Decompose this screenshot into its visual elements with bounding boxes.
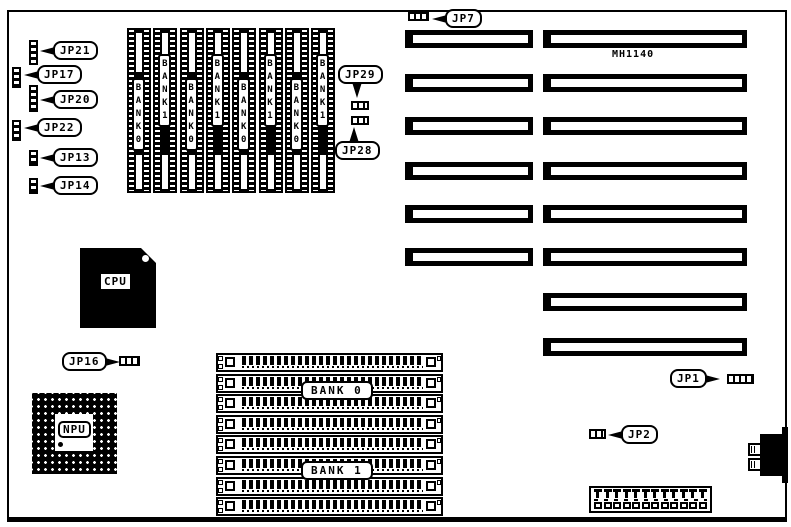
callout-arrow [40,47,55,55]
simm-clip [437,480,441,485]
slot-opening [413,122,528,130]
simm-contact-dots [242,490,423,492]
jumper-label: JP21 [60,44,91,57]
simm-contacts [242,480,423,489]
jumper-block-jp22 [12,120,21,141]
simm-latch [426,460,436,470]
dip-bank-label: BANK0 [185,78,198,151]
simm-clip [218,397,223,402]
slot-opening [551,343,742,351]
jumper-block-jp17 [12,67,21,88]
dip-bank-label: BANK1 [316,54,329,127]
power-pin-icon [661,489,669,498]
power-pin-icon [623,489,631,498]
expansion-slot [543,162,747,180]
power-socket-row [594,502,707,509]
socket-key-slot [189,33,195,72]
cpu-label: CPU [101,274,130,289]
npu-socket-center: NPU [55,414,93,451]
jumper-block-jp1 [727,374,754,384]
socket-key-slot [162,155,168,189]
expansion-slot [543,338,747,356]
slot-opening [413,253,528,261]
simm-clip [218,467,223,472]
expansion-slot [543,293,747,311]
simm-clip [437,459,441,464]
simm-latch [426,357,436,367]
callout-arrow [105,358,120,366]
simm-clip [437,397,441,402]
keyboard-port-icon [748,443,762,456]
simm-latch [426,378,436,388]
slot-opening [551,122,742,130]
dip-socket: BANK1 [206,28,230,193]
simm-latch [426,481,436,491]
simm-clip [437,438,441,443]
simm-clip [218,508,223,513]
simm-latch [225,501,235,511]
dip-socket: BANK0 [285,28,309,193]
simm-latch [426,419,436,429]
jumper-block-jp28 [351,116,369,125]
simm-latch [426,439,436,449]
expansion-slot [543,205,747,223]
dip-bank-label: BANK0 [290,78,303,151]
slot-opening [551,298,742,306]
keyboard-port-icon [748,458,762,471]
simm-clip [437,500,441,505]
simm-socket [216,497,443,516]
simm-clip [218,488,223,493]
jumper-label: JP20 [60,93,91,106]
expansion-slot [405,205,533,223]
pin1-dot-icon [142,255,149,262]
simm-clip [437,356,441,361]
simm-clip [218,377,223,382]
socket-key-slot [320,155,326,189]
jumper-label: JP28 [342,144,373,157]
jumper-block-jp29 [351,101,369,110]
simm-socket [216,353,443,372]
jumper-label: JP14 [60,179,91,192]
dip-socket: BANK1 [259,28,283,193]
jumper-block-jp20 [29,85,38,112]
expansion-slot [543,30,747,48]
jumper-label: JP29 [345,68,376,81]
callout-jp29: JP29 [338,65,383,84]
expansion-slot [405,117,533,135]
jumper-block-jp16 [119,356,140,366]
callout-arrow [40,182,55,190]
expansion-slot [543,248,747,266]
pin1-dot-icon [58,442,63,447]
power-pin-icon [594,489,602,498]
callout-jp22: JP22 [37,118,82,137]
jumper-block-jp7 [408,12,429,21]
power-socket-icon [642,502,650,509]
keyboard-connector [760,434,784,476]
slot-opening [551,167,742,175]
npu-socket: NPU [32,393,117,474]
simm-clip [218,356,223,361]
dip-bank-label: BANK1 [264,54,277,127]
power-socket-icon [632,502,640,509]
simm-clip [218,480,223,485]
socket-key-slot [294,33,300,72]
callout-arrow [352,82,362,98]
keyboard-connector-bracket [782,427,788,483]
cpu-chip: CPU [80,248,156,328]
socket-key-slot [215,155,221,189]
jumper-label: JP17 [44,68,75,81]
jumper-label: JP7 [452,12,475,25]
jumper-block-jp13 [29,150,38,166]
simm-latch [225,398,235,408]
simm-contact-dots [242,366,423,368]
expansion-slot [405,162,533,180]
jumper-block-jp21 [29,40,38,65]
power-socket-icon [604,502,612,509]
power-socket-icon [651,502,659,509]
dip-bank-label: BANK1 [158,54,171,127]
simm-latch [225,378,235,388]
callout-arrow [349,127,359,143]
simm-clip [218,364,223,369]
callout-arrow [705,375,720,383]
simm-contacts [242,356,423,365]
expansion-slot [543,74,747,92]
motherboard-diagram: BANK0BANK1BANK0BANK1BANK0BANK1BANK0BANK1… [0,0,791,527]
callout-jp1: JP1 [670,369,707,388]
jumper-label: JP1 [677,372,700,385]
power-socket-icon [594,502,602,509]
simm-latch [225,419,235,429]
socket-key-slot [241,155,247,189]
callout-arrow [24,124,39,132]
simm-latch [426,501,436,511]
simm-latch [225,460,235,470]
slot-opening [551,35,742,43]
power-pin-icon [689,489,697,498]
simm-contact-dots [242,407,423,409]
socket-pin-column [170,30,175,191]
callout-jp21: JP21 [53,41,98,60]
callout-jp20: JP20 [53,90,98,109]
simm-clip [218,500,223,505]
dip-memory-area: BANK0BANK1BANK0BANK1BANK0BANK1BANK0BANK1 [127,28,337,193]
jumper-label: JP2 [628,428,651,441]
simm-socket [216,435,443,454]
slot-opening [413,167,528,175]
expansion-slot [543,117,747,135]
power-socket-icon [699,502,707,509]
power-pin-icon [604,489,612,498]
socket-key-slot [241,33,247,72]
power-socket-icon [623,502,631,509]
jumper-label: JP22 [44,121,75,134]
power-pin-icon [670,489,678,498]
slot-opening [551,253,742,261]
simm-clip [218,426,223,431]
dip-bank-label: BANK0 [237,78,250,151]
simm-socket [216,415,443,434]
power-socket-icon [613,502,621,509]
power-socket-icon [689,502,697,509]
socket-key-slot [189,155,195,189]
power-pin-icon [699,489,707,498]
power-pin-icon [642,489,650,498]
socket-key-slot [268,155,274,189]
callout-arrow [608,431,623,439]
dip-socket: BANK1 [311,28,335,193]
callout-arrow [24,71,39,79]
callout-jp2: JP2 [621,425,658,444]
jumper-block-jp2 [589,429,606,439]
dip-socket: BANK0 [127,28,151,193]
power-pin-row [594,489,707,498]
socket-key-slot [136,155,142,189]
dip-bank-label: BANK1 [211,54,224,127]
simm-clip [218,385,223,390]
slot-opening [551,79,742,87]
callout-jp28: JP28 [335,141,380,160]
callout-jp14: JP14 [53,176,98,195]
power-socket-icon [661,502,669,509]
simm-contact-dots [242,448,423,450]
socket-key-slot [294,155,300,189]
slot-opening [413,210,528,218]
simm-clip [218,418,223,423]
expansion-slot [405,248,533,266]
expansion-slot [405,30,533,48]
power-pin-marks [594,499,707,501]
simm-latch [225,357,235,367]
simm-clip [437,418,441,423]
slot-opening [413,79,528,87]
dip-socket: BANK0 [180,28,204,193]
slot-opening [413,35,528,43]
simm-bank0-label: BANK 0 [301,381,373,400]
simm-clip [437,377,441,382]
simm-latch [426,398,436,408]
power-pin-icon [632,489,640,498]
jumper-block-jp14 [29,178,38,194]
simm-clip [218,405,223,410]
simm-clip [218,438,223,443]
power-pin-icon [651,489,659,498]
power-pin-icon [680,489,688,498]
expansion-slot [405,74,533,92]
power-socket-icon [670,502,678,509]
jumper-label: JP13 [60,151,91,164]
jumper-label: JP16 [69,355,100,368]
simm-bank1-label: BANK 1 [301,461,373,480]
dip-bank-label: BANK0 [132,78,145,151]
dip-socket: BANK1 [153,28,177,193]
chip-part-number: MH1140 [612,49,654,60]
power-pin-icon [613,489,621,498]
callout-arrow [40,96,55,104]
callout-arrow [432,15,447,23]
callout-jp16: JP16 [62,352,107,371]
simm-latch [225,481,235,491]
slot-opening [551,210,742,218]
npu-label: NPU [58,421,91,438]
callout-jp7: JP7 [445,9,482,28]
simm-contacts [242,500,423,509]
callout-arrow [40,154,55,162]
simm-latch [225,439,235,449]
socket-key-slot [136,33,142,72]
callout-jp17: JP17 [37,65,82,84]
simm-contact-dots [242,428,423,430]
simm-contact-dots [242,510,423,512]
callout-jp13: JP13 [53,148,98,167]
simm-contacts [242,418,423,427]
simm-clip [218,459,223,464]
simm-clip [218,446,223,451]
power-socket-icon [680,502,688,509]
power-connector [589,486,712,513]
simm-contacts [242,438,423,447]
dip-socket: BANK0 [232,28,256,193]
